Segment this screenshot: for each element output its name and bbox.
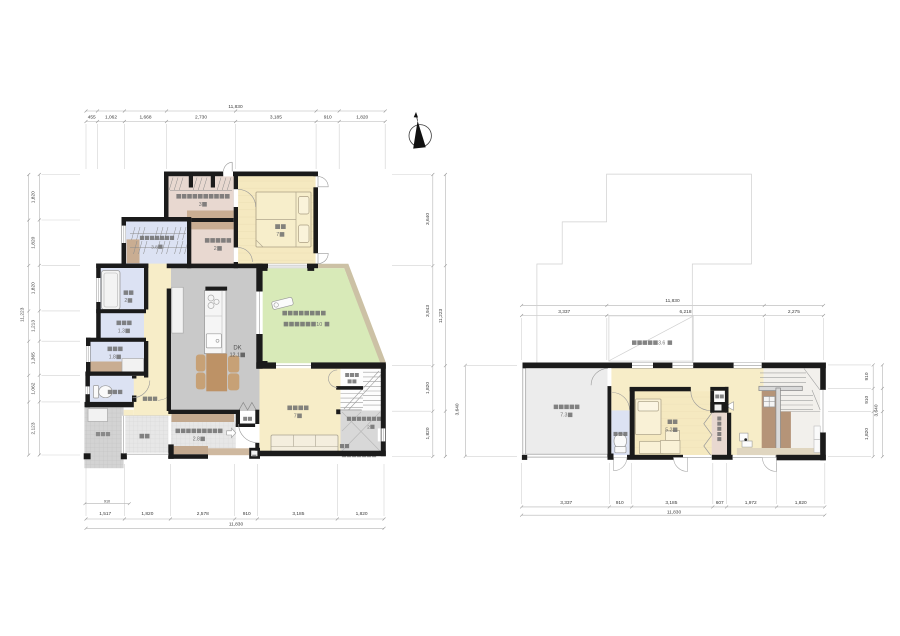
svg-text:3,185: 3,185 (665, 500, 677, 506)
svg-text:7: 7 (294, 414, 297, 420)
svg-text:DK: DK (233, 346, 241, 352)
svg-text:2,578: 2,578 (197, 511, 209, 517)
svg-text:910: 910 (864, 395, 870, 403)
svg-text:2,123: 2,123 (31, 422, 37, 434)
svg-text:1,517: 1,517 (99, 511, 111, 517)
svg-text:1,820: 1,820 (425, 382, 431, 394)
svg-text:1,820: 1,820 (356, 115, 368, 121)
svg-text:2,275: 2,275 (788, 309, 800, 315)
svg-text:1,972: 1,972 (745, 500, 757, 506)
svg-text:1,668: 1,668 (139, 115, 151, 121)
svg-text:1.3: 1.3 (118, 329, 125, 335)
svg-text:1,820: 1,820 (795, 500, 807, 506)
svg-text:3.6: 3.6 (658, 340, 665, 346)
svg-text:3,943: 3,943 (425, 305, 431, 317)
svg-text:11,830: 11,830 (229, 522, 244, 528)
svg-text:910: 910 (616, 500, 624, 506)
svg-text:10: 10 (316, 322, 322, 328)
svg-text:11,830: 11,830 (665, 298, 680, 304)
svg-text:12.1: 12.1 (230, 353, 240, 359)
svg-text:3,185: 3,185 (292, 511, 304, 517)
svg-text:2.8: 2.8 (193, 437, 200, 443)
svg-text:2: 2 (124, 298, 127, 304)
svg-text:910: 910 (324, 115, 332, 121)
svg-text:2: 2 (214, 246, 217, 252)
svg-text:3,640: 3,640 (425, 213, 431, 225)
svg-text:2,730: 2,730 (195, 115, 207, 121)
svg-text:607: 607 (716, 500, 724, 506)
svg-text:7.3: 7.3 (560, 413, 567, 419)
svg-text:1,820: 1,820 (425, 427, 431, 439)
svg-text:6,218: 6,218 (679, 309, 691, 315)
svg-text:910: 910 (243, 511, 251, 517)
svg-text:11,830: 11,830 (228, 104, 243, 110)
svg-text:1,062: 1,062 (105, 115, 117, 121)
svg-text:3.8: 3.8 (151, 244, 158, 250)
svg-text:7: 7 (276, 232, 279, 238)
svg-text:455: 455 (88, 115, 96, 121)
svg-text:3: 3 (199, 202, 202, 208)
svg-text:3,337: 3,337 (558, 309, 570, 315)
svg-text:3,640: 3,640 (455, 403, 461, 415)
svg-text:1,820: 1,820 (31, 191, 37, 203)
svg-text:1,062: 1,062 (31, 382, 37, 394)
svg-text:910: 910 (104, 500, 110, 504)
svg-text:1,820: 1,820 (31, 236, 37, 248)
svg-text:11,223: 11,223 (19, 307, 25, 322)
svg-text:1,213: 1,213 (31, 320, 37, 332)
svg-text:1,820: 1,820 (864, 428, 870, 440)
svg-text:11,830: 11,830 (667, 510, 682, 516)
svg-text:11,223: 11,223 (438, 309, 444, 324)
svg-text:5.2: 5.2 (665, 428, 672, 434)
svg-text:1,365: 1,365 (31, 352, 37, 364)
svg-text:1.8: 1.8 (109, 355, 116, 361)
svg-text:3,185: 3,185 (270, 115, 282, 121)
svg-text:1,820: 1,820 (31, 282, 37, 294)
svg-text:1,820: 1,820 (141, 511, 153, 517)
svg-text:3,337: 3,337 (560, 500, 572, 506)
svg-text:3,640: 3,640 (874, 404, 880, 416)
svg-text:1,820: 1,820 (356, 511, 368, 517)
svg-text:2: 2 (367, 425, 370, 431)
svg-text:910: 910 (864, 372, 870, 380)
